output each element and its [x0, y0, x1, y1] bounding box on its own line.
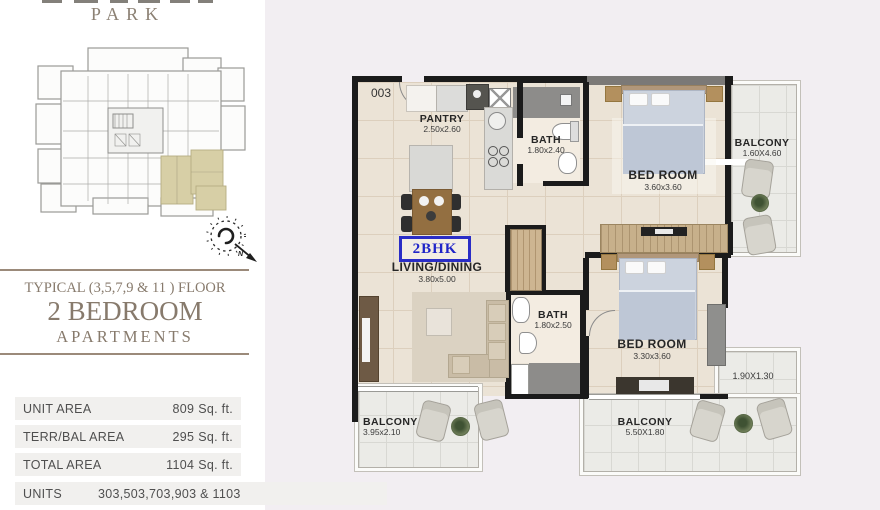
centerpiece [426, 211, 436, 221]
wall [521, 76, 587, 83]
area-row-unit-area: UNIT AREA 809Sq. ft. [15, 397, 241, 420]
unit-number: 003 [371, 86, 391, 100]
nightstand [605, 86, 622, 102]
wall-concrete [587, 76, 731, 85]
plate [434, 196, 444, 206]
balcony-door-bedroom2 [589, 394, 700, 400]
cropped-logo-text [42, 0, 62, 3]
shower-drain [560, 94, 572, 106]
cropped-logo-text [170, 0, 190, 3]
nightstand [706, 86, 723, 102]
area-row-total: TOTAL AREA 1104Sq. ft. [15, 453, 241, 476]
toilet [519, 332, 537, 354]
area-row-value: 295 [172, 430, 194, 444]
cropped-logo-text [138, 0, 160, 3]
counter-sink [488, 112, 506, 130]
plant-icon [451, 417, 470, 436]
pillow [629, 93, 648, 106]
wall [424, 76, 523, 82]
area-row-label: UNITS [23, 487, 62, 501]
room-label-pantry: PANTRY 2.50x2.60 [402, 113, 482, 135]
sofa-cushion [488, 342, 506, 360]
kitchen-counter [436, 85, 468, 112]
bath2-shower-tray [511, 364, 529, 397]
area-row-label: UNIT AREA [23, 402, 91, 416]
divider-line [0, 353, 249, 355]
room-label-balcony-right: BALCONY 1.60X4.60 [722, 137, 802, 159]
nightstand [601, 254, 617, 270]
cropped-logo-text [198, 0, 213, 3]
area-row-unit: Sq. ft. [198, 458, 233, 472]
balcony-door-living [358, 386, 478, 392]
wardrobe [707, 304, 726, 366]
area-row-units: UNITS 303,503,703,903 & 1103 [15, 482, 387, 505]
page-subtitle: APARTMENTS [0, 327, 250, 347]
pillow [647, 261, 666, 274]
wall [517, 164, 523, 186]
area-row-value: 809 [172, 402, 194, 416]
tv-screen [362, 318, 370, 362]
wall [700, 394, 728, 399]
room-label-balcony-br: BALCONY 5.50X1.80 [605, 416, 685, 438]
wall [505, 394, 588, 399]
divider-line [0, 269, 249, 271]
stove-burner [488, 157, 498, 167]
tv-screen [655, 229, 673, 234]
brand-logo: PARK [0, 4, 256, 25]
plant-icon [734, 414, 753, 433]
sofa-cushion [452, 356, 470, 374]
area-row-unit: Sq. ft. [198, 402, 233, 416]
service-shaft [489, 88, 511, 108]
sofa-cushion [488, 323, 506, 341]
room-label-bedroom2: BED ROOM 3.30x3.60 [602, 338, 702, 362]
cropped-logo-text [74, 0, 98, 3]
tv-screen [639, 380, 669, 391]
wall [722, 258, 728, 308]
area-row-label: TERR/BAL AREA [23, 430, 124, 444]
room-label-bedroom1: BED ROOM 3.60x3.60 [613, 169, 713, 193]
unit-type-badge: 2BHK [399, 236, 471, 262]
brochure-page: PARK [0, 0, 880, 510]
area-row-value: 303,503,703,903 & 1103 [98, 487, 241, 501]
wardrobe-closet [510, 229, 542, 291]
area-row-value: 1104 [166, 458, 194, 472]
wall [725, 76, 733, 85]
bed-blanket [619, 290, 695, 340]
room-label-living-dining: LIVING/DINING 3.80x5.00 [377, 261, 497, 285]
bed-blanket [623, 124, 703, 174]
area-row-terr-bal: TERR/BAL AREA 295Sq. ft. [15, 425, 241, 448]
plate [419, 196, 429, 206]
plant-icon [751, 194, 769, 212]
stove-burner [499, 157, 509, 167]
compass-north-label: N [238, 251, 244, 258]
cropped-logo-text [110, 0, 128, 3]
sofa-cushion [488, 304, 506, 322]
dim-label-balcony-ext: 1.90X1.30 [713, 371, 793, 381]
wall [352, 76, 358, 422]
page-title: 2 BEDROOM [0, 296, 250, 327]
bath2-shower [529, 363, 582, 396]
room-label-balcony-bl: BALCONY 3.95x2.10 [363, 416, 423, 438]
wall [517, 82, 523, 138]
pillow [651, 93, 670, 106]
kitchen-cabinet [406, 85, 438, 112]
coffee-table [426, 308, 452, 336]
key-plan [33, 46, 255, 228]
floor-line: TYPICAL (3,5,7,9 & 11 ) FLOOR [0, 280, 250, 297]
area-row-unit: Sq. ft. [198, 430, 233, 444]
stove-burner [488, 146, 498, 156]
room-label-bath1: BATH 1.80x2.40 [508, 134, 584, 156]
pillow [625, 261, 644, 274]
area-row-label: TOTAL AREA [23, 458, 102, 472]
wall [728, 222, 733, 255]
kitchen-island [409, 145, 453, 192]
wall [352, 76, 402, 82]
sink-basin [473, 90, 481, 98]
compass-icon: N [200, 212, 262, 270]
nightstand [699, 254, 715, 270]
room-label-bath2: BATH 1.80x2.50 [515, 309, 591, 331]
